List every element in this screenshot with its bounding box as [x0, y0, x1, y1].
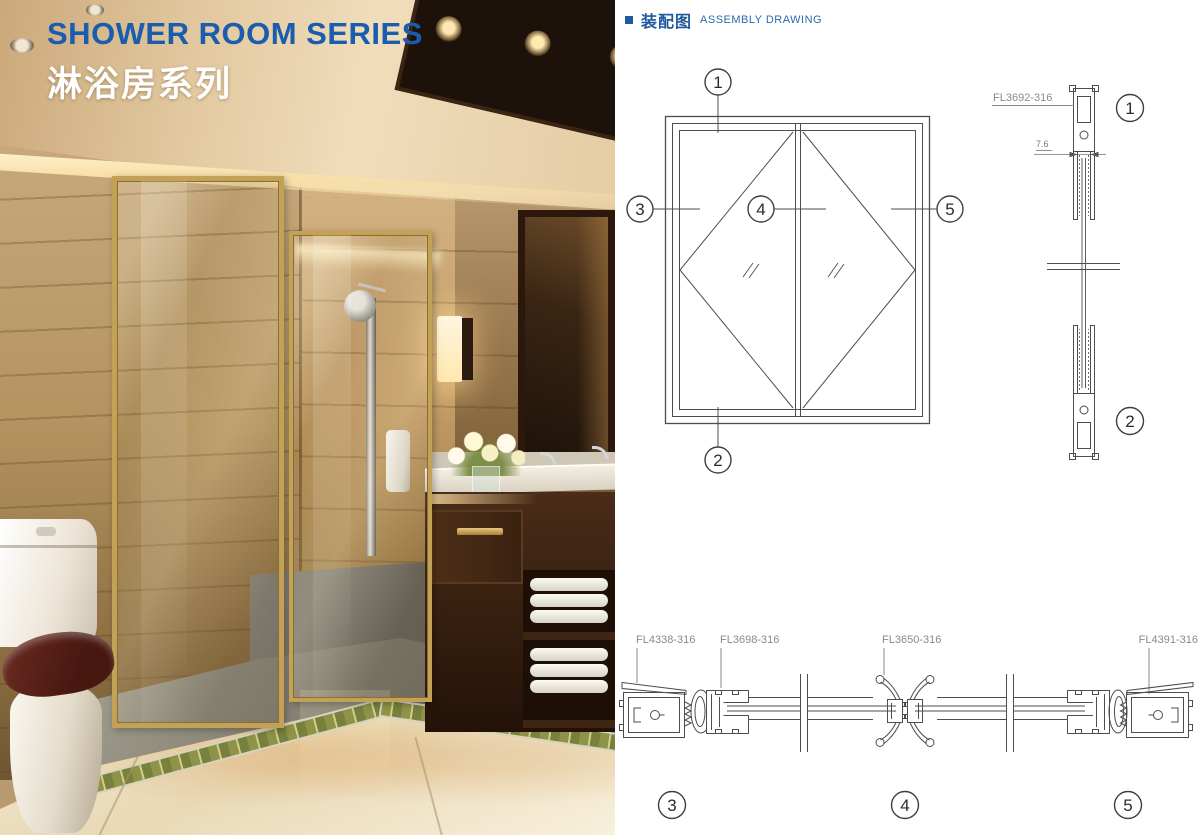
svg-text:3: 3: [667, 796, 676, 815]
assembly-drawing: 1 2 3 4 5: [615, 0, 1200, 835]
section-part-label-1: FL4338-316: [636, 634, 695, 646]
mirror-reflection: [578, 217, 608, 461]
callout-side-1: 1: [1117, 95, 1144, 122]
break-line: [1047, 264, 1120, 270]
faucet: [592, 446, 608, 459]
toilet-tank: [0, 519, 97, 647]
bottom-rail-profile: [1070, 326, 1099, 460]
flush-button: [36, 527, 56, 536]
shower-glass-panel-right: [289, 231, 432, 702]
assembly-drawing-panel: 装配图 ASSEMBLY DRAWING: [615, 0, 1200, 835]
wall-profile-left: [620, 683, 692, 738]
square-bullet-icon: [625, 16, 633, 24]
dimension-7-6: 7.6: [1034, 139, 1106, 157]
door-jamb-profile-left: [691, 690, 749, 734]
callout-section-5: 5: [1115, 792, 1142, 819]
side-part-label: FL3692-316: [993, 92, 1052, 104]
svg-text:4: 4: [900, 796, 909, 815]
svg-text:5: 5: [945, 200, 954, 219]
toilet-bowl: [10, 683, 102, 833]
towel-stack: [530, 648, 608, 696]
ceiling-spotlight: [10, 38, 34, 53]
under-counter-light: [427, 494, 537, 504]
callout-section-3: 3: [659, 792, 686, 819]
frame-outer: [666, 117, 930, 424]
downlight-icon: [522, 28, 553, 59]
hanging-towel: [386, 430, 410, 492]
glass-reflection: [313, 235, 351, 698]
downlight-icon: [607, 42, 615, 73]
svg-text:2: 2: [713, 451, 722, 470]
ceiling-spotlight: [86, 4, 104, 16]
door-swing-right: [803, 132, 915, 408]
glass-hatch-icon: [743, 263, 759, 278]
callout-5: 5: [937, 196, 963, 222]
assembly-header: 装配图 ASSEMBLY DRAWING: [625, 8, 822, 32]
door-swing-left: [680, 132, 793, 408]
side-section-view: [992, 86, 1120, 460]
shelf-board: [523, 632, 615, 640]
panel-frame: [680, 131, 916, 410]
section-part-label-2: FL3698-316: [720, 634, 779, 646]
vanity-mirror: [518, 210, 615, 468]
callout-1: 1: [705, 69, 731, 95]
svg-text:4: 4: [756, 200, 765, 219]
svg-text:1: 1: [713, 73, 722, 92]
toilet-tank-lid-line: [0, 545, 97, 548]
glass-reflection: [141, 181, 186, 723]
callout-3: 3: [627, 196, 653, 222]
section-part-label-4: FL4391-316: [1139, 634, 1198, 646]
svg-text:1: 1: [1125, 99, 1134, 118]
section-part-label-3: FL3650-316: [882, 634, 941, 646]
callout-2: 2: [705, 447, 731, 473]
vanity-cabinet: [425, 492, 615, 732]
vanity-drawer: [431, 510, 523, 584]
shower-glass-panel-left: [112, 176, 284, 728]
assembly-heading-en: ASSEMBLY DRAWING: [700, 14, 822, 26]
faucet: [540, 452, 556, 465]
downlight-icon: [433, 14, 464, 45]
wall-sconce-light: [437, 316, 463, 382]
callout-section-4: 4: [892, 792, 919, 819]
svg-text:5: 5: [1123, 796, 1132, 815]
callout-4: 4: [748, 196, 774, 222]
catalog-page: SHOWER ROOM SERIES 淋浴房系列 装配图 ASSEMBLY DR…: [0, 0, 1200, 835]
towel-stack: [530, 578, 608, 626]
svg-text:2: 2: [1125, 412, 1134, 431]
wall-profile-right: [1121, 683, 1194, 738]
open-shelves: [523, 570, 615, 728]
shelf-board: [523, 720, 615, 728]
drawer-handle: [457, 528, 503, 535]
front-elevation-view: [654, 96, 937, 447]
frame-inner: [673, 124, 923, 417]
svg-text:7.6: 7.6: [1036, 139, 1049, 149]
toilet: [0, 515, 125, 835]
bottom-section-view: [620, 674, 1194, 752]
assembly-heading-zh: 装配图: [641, 8, 692, 32]
glass-hatch-icon: [828, 263, 844, 278]
svg-text:3: 3: [635, 200, 644, 219]
page-title-en: SHOWER ROOM SERIES: [47, 16, 423, 52]
bathroom-photo: SHOWER ROOM SERIES 淋浴房系列: [0, 0, 615, 835]
page-title-zh: 淋浴房系列: [47, 56, 232, 107]
callout-side-2: 2: [1117, 408, 1144, 435]
door-jamb-profile-right: [1067, 690, 1127, 734]
wall-sconce-bracket: [462, 318, 473, 380]
